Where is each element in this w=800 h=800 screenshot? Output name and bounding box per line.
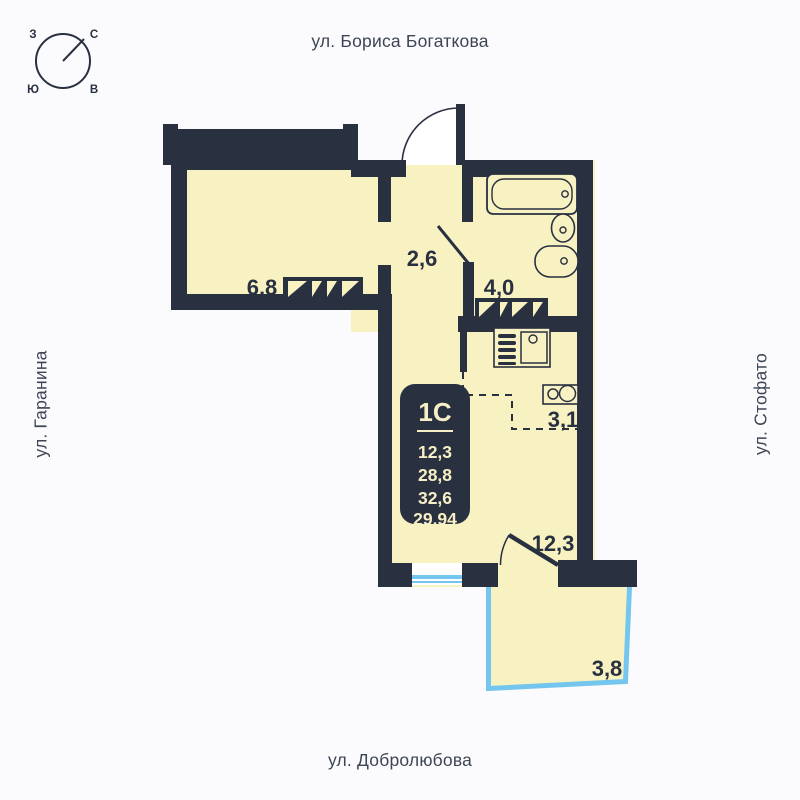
wall-bottom-right-chunk xyxy=(558,560,637,587)
street-label-right: ул. Стофато xyxy=(751,353,772,455)
label-room-68: 6,8 xyxy=(247,275,278,300)
street-label-top: ул. Бориса Богаткова xyxy=(0,31,800,52)
kitchen-sink-icon xyxy=(494,328,550,367)
floorplan-page: ул. Бориса Богаткова ул. Гаранина ул. Ст… xyxy=(0,0,800,800)
bathtub-icon xyxy=(487,174,577,214)
toilet-icon xyxy=(535,246,578,277)
wall-right xyxy=(577,160,593,562)
apartment-type-label: 1С xyxy=(418,397,451,427)
entrance-door-leaf xyxy=(456,104,465,165)
wall-bottom-a xyxy=(388,563,412,587)
wall-left xyxy=(171,160,187,310)
wall-kitchen-stub xyxy=(460,332,467,372)
stove-icon xyxy=(543,385,578,404)
apartment-info-card: 1С 12,3 28,8 32,6 29,94 xyxy=(400,384,470,529)
street-label-left: ул. Гаранина xyxy=(31,350,52,457)
wardrobe-room68-icon xyxy=(283,277,363,301)
card-value-1: 12,3 xyxy=(418,442,452,462)
entrance-door-swing xyxy=(402,108,459,165)
label-kitchen: 3,1 xyxy=(548,407,579,432)
wardrobe-bathroom-icon xyxy=(475,298,548,321)
wall-partition-lower xyxy=(378,265,391,298)
card-value-3: 32,6 xyxy=(418,488,452,508)
sink-icon xyxy=(552,214,575,242)
compass-east: В xyxy=(90,84,98,96)
wall-bathroom-left-upper xyxy=(462,160,473,222)
wall-left-lower xyxy=(378,294,392,587)
wall-top-thick xyxy=(171,129,351,170)
floorplan-svg: З С Ю В xyxy=(0,0,800,800)
label-hall: 2,6 xyxy=(407,246,438,271)
street-label-bottom: ул. Добролюбова xyxy=(0,750,800,771)
label-living: 12,3 xyxy=(532,531,575,556)
compass-south: Ю xyxy=(27,84,39,96)
wall-partition-upper xyxy=(378,165,391,222)
label-balcony: 3,8 xyxy=(592,656,623,681)
card-value-2: 28,8 xyxy=(418,465,452,485)
label-bathroom: 4,0 xyxy=(484,275,515,300)
card-value-4: 29,94 xyxy=(413,509,457,529)
wall-bottom-b xyxy=(462,563,498,587)
window xyxy=(412,563,462,585)
